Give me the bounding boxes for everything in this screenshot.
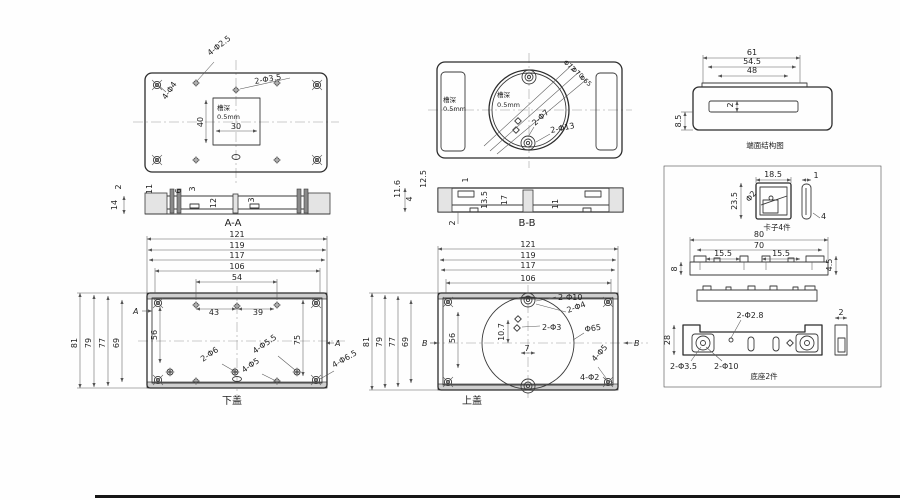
- dim-40: 40: [196, 117, 205, 127]
- dim-bb-12.5: 12.5: [419, 170, 428, 188]
- dim-bc-43: 43: [209, 308, 219, 317]
- label-2xphi3.5-base: 2-Φ3.5: [670, 362, 697, 371]
- view-section-bb: 12.5 11.6 4 1 13.5 17 11 2 B-B: [393, 170, 623, 229]
- dim-base-28: 28: [663, 335, 672, 345]
- top-cover-caption: 上盖: [462, 394, 482, 407]
- label-2xphi4: 2-Φ4: [566, 300, 587, 315]
- dim-tc-56: 56: [448, 333, 457, 343]
- engineering-drawing-canvas: 槽深 0.5mm 30 40 4-Φ2.5 4-Φ4 2-Φ3.5 槽深 0.5…: [0, 0, 900, 500]
- bottom-cover-caption: 下盖: [222, 394, 242, 407]
- section-marker-b-right: B: [634, 339, 640, 348]
- slot-depth-left-1: 槽深: [443, 95, 457, 104]
- label-4xphi5: 4-Φ5: [240, 356, 261, 374]
- dim-bc-119: 119: [229, 241, 244, 250]
- dim-bc-56: 56: [150, 330, 159, 340]
- label-4xphi6.5: 4-Φ6.5: [331, 348, 359, 369]
- dim-clip-1: 1: [813, 171, 818, 180]
- dim-bc-81: 81: [70, 338, 79, 348]
- page-bottom-border: [95, 495, 900, 498]
- label-2xphi6: 2-Φ6: [199, 345, 220, 363]
- part-rail: 80 70 15.5 15.5 8 4.5: [670, 230, 836, 301]
- dim-bb-11.6: 11.6: [393, 180, 402, 198]
- dim-61: 61: [747, 48, 757, 57]
- dim-rail-15.5a: 15.5: [714, 249, 732, 258]
- label-2xphi7: 2-Φ7: [530, 108, 550, 128]
- dim-bc-106: 106: [229, 262, 244, 271]
- dim-8.5: 8.5: [674, 115, 683, 128]
- label-2xphi3.5: 2-Φ3.5: [254, 72, 282, 86]
- view-base-plate: 槽深 0.5mm 30 40 4-Φ2.5 4-Φ4 2-Φ3.5: [133, 34, 339, 184]
- label-2xphi10-base: 2-Φ10: [714, 362, 738, 371]
- part-clip: 18.5 23.5 Φ2 1 4 卡子4件: [730, 170, 826, 232]
- view-bottom-cover: 121 119 117 106 54 43 39 81 79 77 69 56 …: [70, 230, 358, 407]
- label-2xphi2.8: 2-Φ2.8: [737, 311, 764, 320]
- dim-bb-11: 11: [551, 199, 560, 209]
- section-marker-a-right: A: [334, 339, 340, 348]
- dim-tc-81: 81: [362, 337, 371, 347]
- label-4xphi2: 4-Φ2: [580, 373, 599, 382]
- dim-rail-15.5b: 15.5: [772, 249, 790, 258]
- dim-tc-69: 69: [401, 337, 410, 347]
- section-marker-a-left: A: [132, 307, 138, 316]
- dim-rail-8: 8: [670, 266, 679, 271]
- dim-rail-70: 70: [754, 241, 764, 250]
- view-top-cover: 121 119 117 106 81 79 77 69 56 10.7 7 2-…: [362, 240, 648, 407]
- section-aa-caption: A-A: [225, 218, 242, 229]
- dim-tc-121: 121: [520, 240, 535, 249]
- section-marker-b-left: B: [422, 339, 428, 348]
- base-caption: 底座2件: [750, 371, 778, 381]
- dim-tc-77: 77: [388, 337, 397, 347]
- dim-54.5: 54.5: [743, 57, 761, 66]
- dim-bb-17: 17: [500, 195, 509, 205]
- dim-aa-6: 6: [174, 188, 183, 193]
- slot-depth-value: 0.5mm: [217, 113, 240, 121]
- view-section-aa: 2 14 11 6 3 12 3 A-A: [110, 184, 330, 229]
- dim-tc-79: 79: [375, 337, 384, 347]
- clip-caption: 卡子4件: [763, 222, 791, 232]
- dim-bc-79: 79: [84, 338, 93, 348]
- dim-aa-11: 11: [145, 184, 154, 194]
- label-4xphi2.5: 4-Φ2.5: [206, 34, 233, 58]
- label-phi65: Φ65: [578, 73, 593, 88]
- dim-aa-2: 2: [114, 184, 123, 189]
- dim-bc-54: 54: [232, 273, 242, 282]
- slot-depth-circle-2: 0.5mm: [497, 101, 520, 109]
- dim-bc-121: 121: [229, 230, 244, 239]
- dim-bb-13.5: 13.5: [480, 191, 489, 209]
- label-4xphi4: 4-Φ4: [160, 80, 178, 101]
- dim-bb-4: 4: [405, 196, 414, 201]
- dim-aa-14: 14: [110, 200, 119, 210]
- dim-aa-12: 12: [209, 198, 218, 208]
- dim-bb-2: 2: [448, 220, 457, 225]
- label-2xphi3: 2-Φ3: [542, 323, 561, 332]
- label-4xphi5-tc: 4-Φ5: [590, 343, 610, 363]
- end-face-caption: 端面结构图: [746, 140, 784, 150]
- slot-depth-label: 槽深: [217, 103, 231, 112]
- view-end-face: 61 54.5 48 2 8.5 端面结构图: [674, 48, 832, 150]
- dim-bc-117: 117: [229, 251, 244, 260]
- dim-30: 30: [231, 122, 241, 131]
- dim-aa-3a: 3: [188, 186, 197, 191]
- view-circular-recess: 槽深 0.5mm 槽深 0.5mm Φ72 Φ70 Φ65 2-Φ7 2-Φ13: [428, 53, 632, 168]
- label-4xphi5.5: 4-Φ5.5: [251, 333, 278, 356]
- parts-panel: 18.5 23.5 Φ2 1 4 卡子4件 80 70 15.5: [663, 166, 881, 387]
- dim-tc-117: 117: [520, 261, 535, 270]
- dim-bc-39: 39: [253, 308, 263, 317]
- dim-clip-18.5: 18.5: [764, 170, 782, 179]
- dim-rail-80: 80: [754, 230, 764, 239]
- dim-aa-3b: 3: [247, 197, 256, 202]
- part-base: 28 2-Φ2.8 2 2-Φ3.5 2-Φ10 底座2件: [663, 308, 847, 381]
- dim-bc-75: 75: [293, 335, 302, 345]
- dim-2: 2: [726, 102, 735, 107]
- drawing-page: 槽深 0.5mm 30 40 4-Φ2.5 4-Φ4 2-Φ3.5 槽深 0.5…: [0, 0, 900, 500]
- dim-tc-106: 106: [520, 274, 535, 283]
- dim-base-2: 2: [838, 308, 843, 317]
- section-bb-caption: B-B: [519, 218, 536, 229]
- dim-tc-10.7: 10.7: [497, 323, 506, 341]
- dim-48: 48: [747, 66, 757, 75]
- dim-bc-69: 69: [112, 338, 121, 348]
- dim-bc-77: 77: [98, 338, 107, 348]
- slot-depth-left-2: 0.5mm: [443, 105, 466, 113]
- dim-bb-1: 1: [461, 177, 470, 182]
- slot-depth-circle-1: 槽深: [497, 90, 511, 99]
- dim-rail-4.5: 4.5: [825, 259, 834, 272]
- dim-clip-23.5: 23.5: [730, 192, 739, 210]
- label-phi65-tc: Φ65: [584, 323, 602, 334]
- dim-tc-119: 119: [520, 251, 535, 260]
- dim-clip-4: 4: [821, 212, 826, 221]
- dim-tc-7: 7: [524, 344, 529, 353]
